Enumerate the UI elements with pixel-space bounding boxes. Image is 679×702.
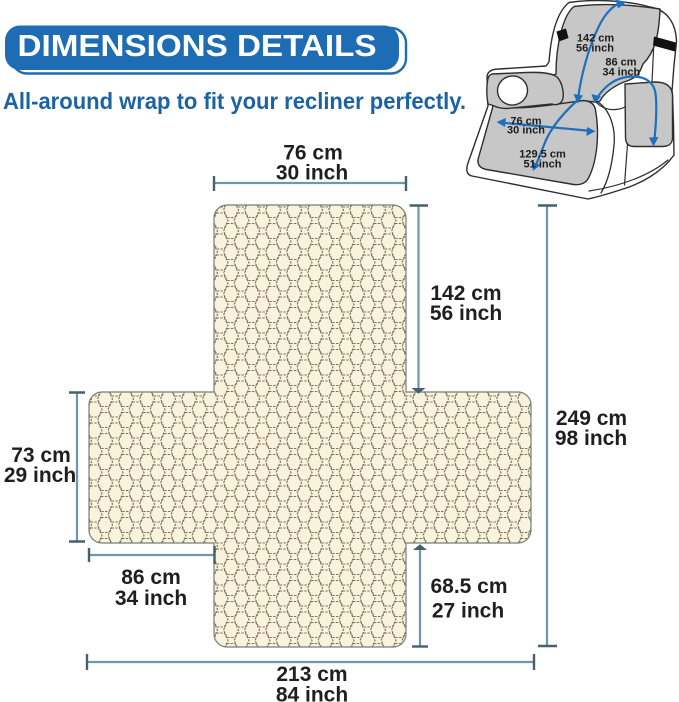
- svg-text:DIMENSIONS DETAILS: DIMENSIONS DETAILS: [18, 28, 377, 63]
- svg-text:84 inch: 84 inch: [276, 684, 348, 702]
- svg-text:27 inch: 27 inch: [432, 600, 504, 623]
- svg-text:68.5 cm: 68.5 cm: [430, 575, 507, 598]
- svg-text:86 cm: 86 cm: [121, 566, 181, 589]
- svg-text:34 inch: 34 inch: [602, 66, 640, 78]
- svg-text:34 inch: 34 inch: [115, 587, 187, 610]
- svg-text:30 inch: 30 inch: [276, 162, 348, 185]
- svg-text:56 inch: 56 inch: [576, 43, 614, 55]
- svg-text:All-around wrap to fit your re: All-around wrap to fit your recliner per…: [3, 88, 466, 114]
- svg-text:30 inch: 30 inch: [507, 125, 545, 137]
- svg-text:51 inch: 51 inch: [524, 159, 562, 171]
- svg-text:56 inch: 56 inch: [430, 302, 502, 325]
- svg-text:29 inch: 29 inch: [4, 464, 76, 487]
- svg-text:98 inch: 98 inch: [555, 427, 627, 450]
